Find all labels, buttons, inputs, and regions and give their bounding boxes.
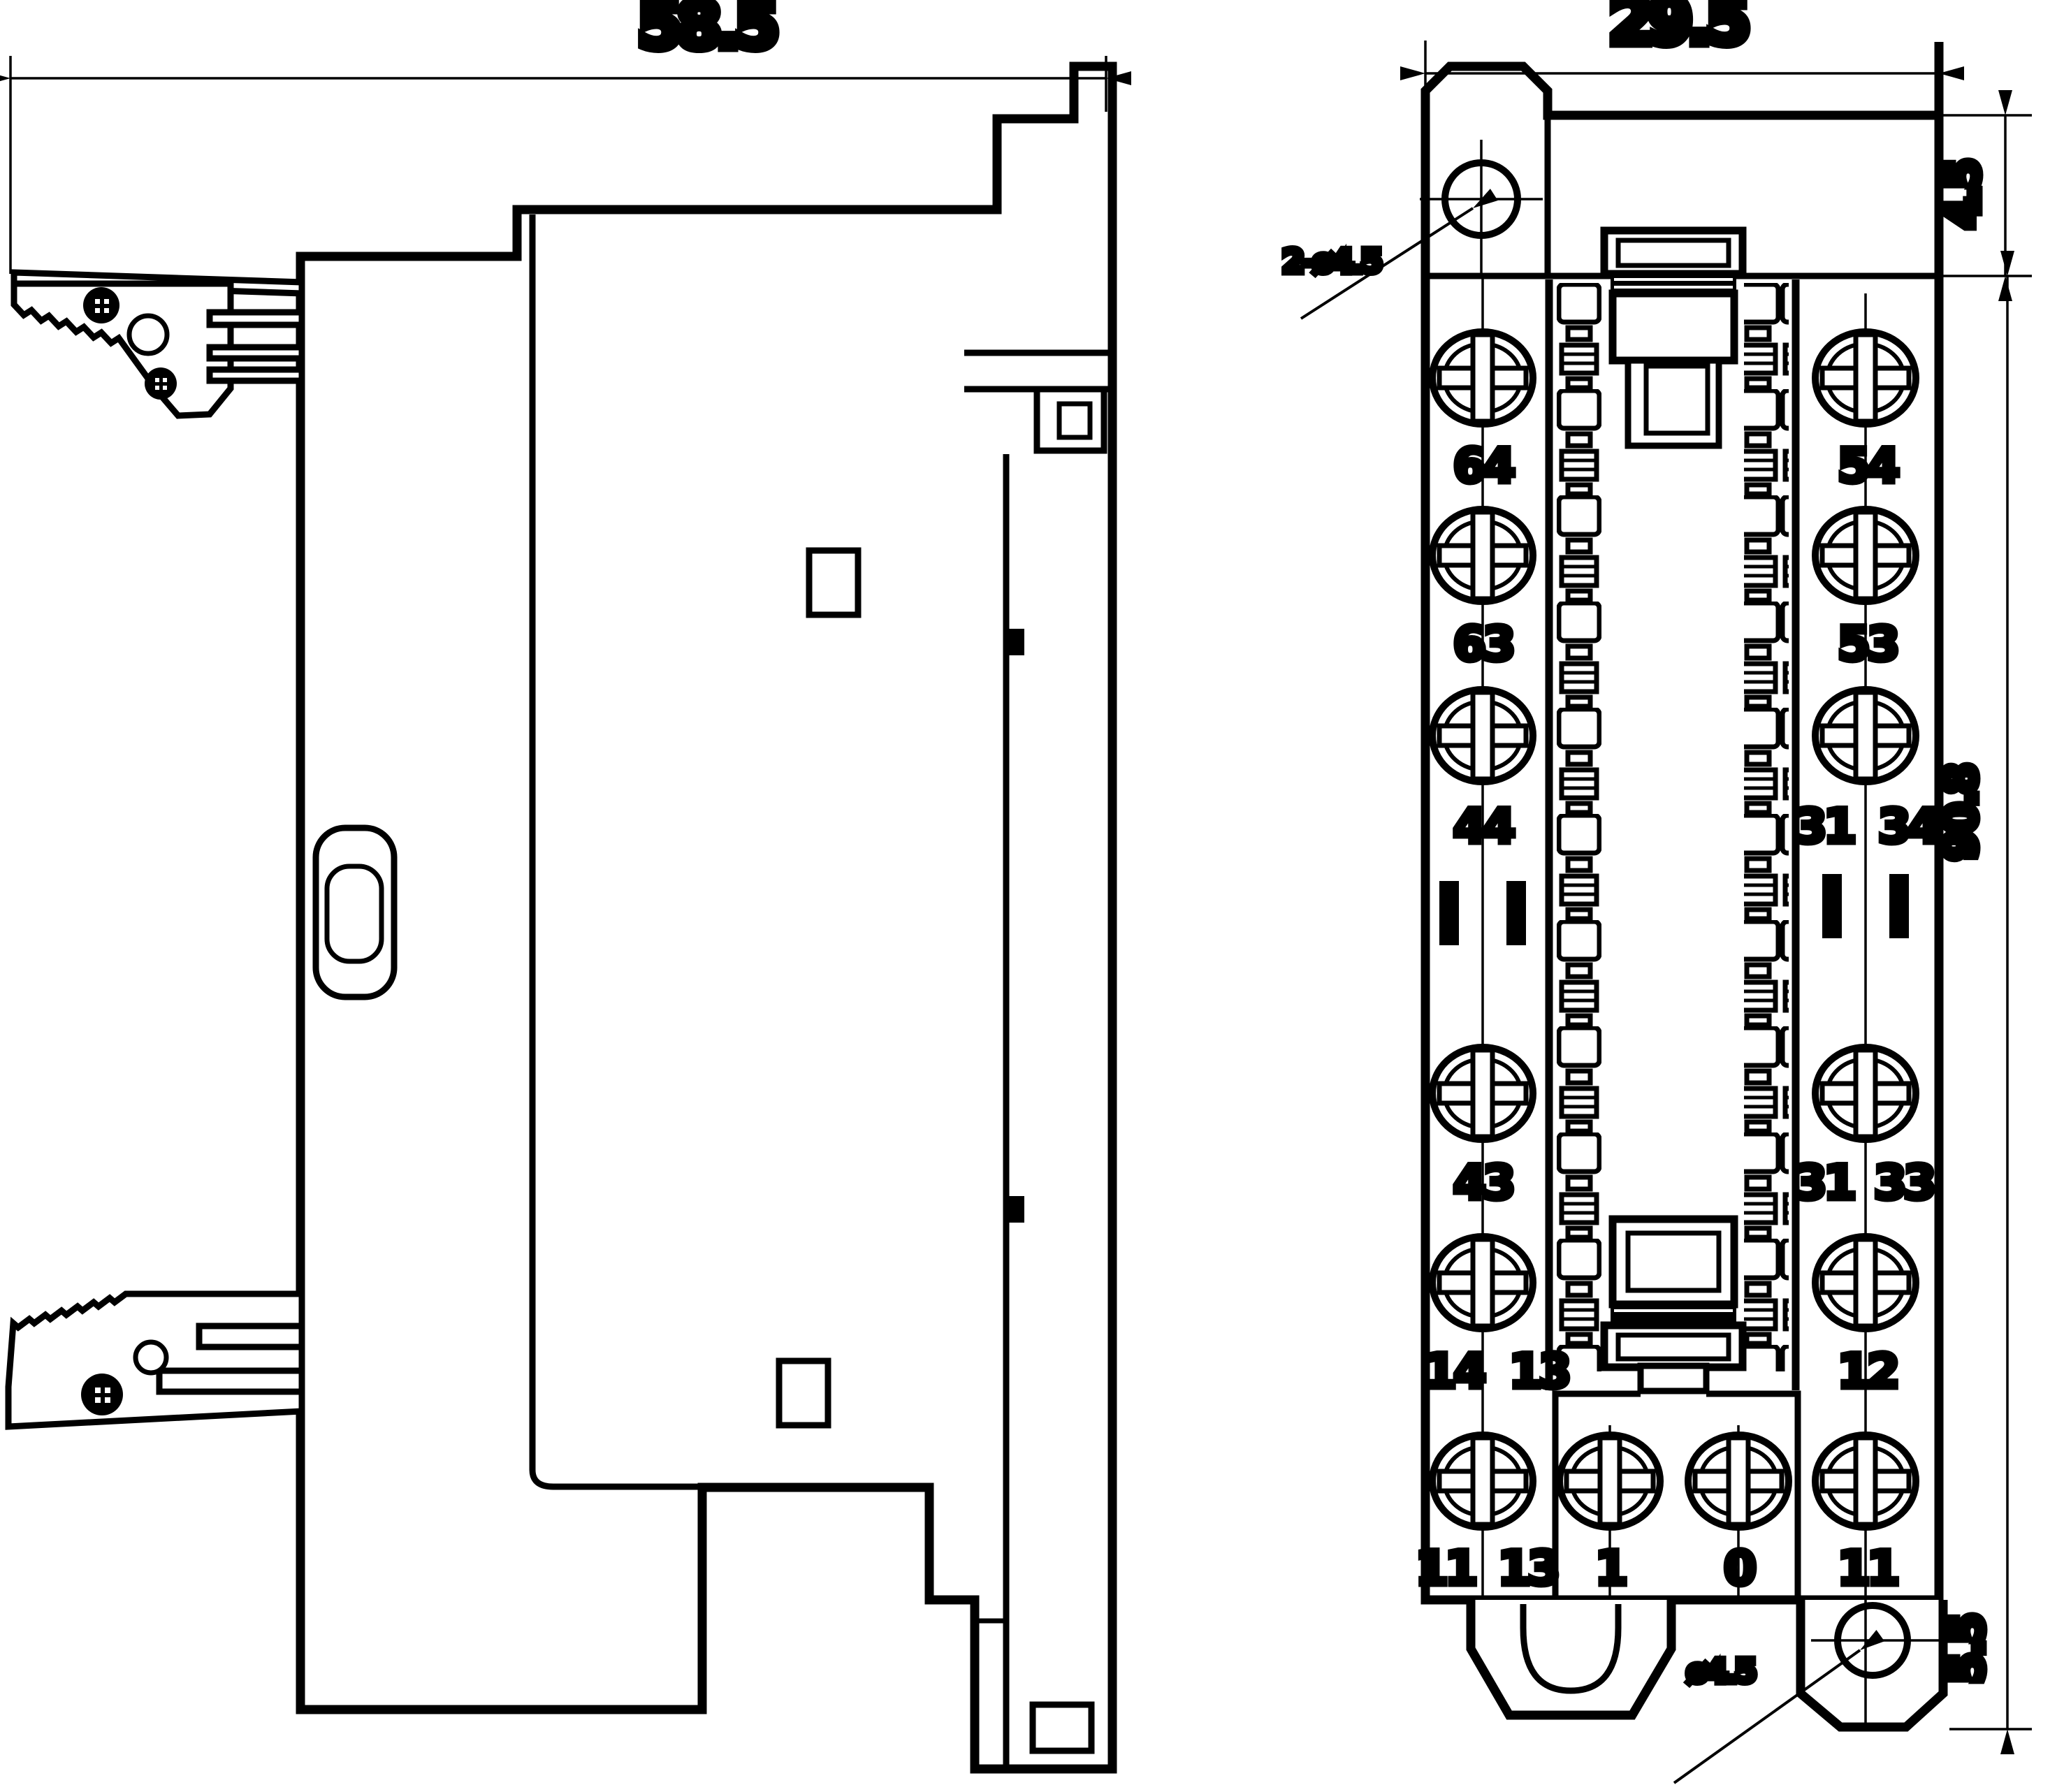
relay-latch-bottom [1604, 1219, 1743, 1391]
dimension-label-front-width: 29.5 [1609, 0, 1747, 59]
terminal-label: 44 [1453, 799, 1514, 854]
terminal-label: 13 [1509, 1344, 1569, 1399]
technical-drawing: 58.5 [0, 0, 2064, 1792]
terminal-label: 63 [1453, 617, 1513, 672]
din-claw-bottom [8, 1294, 302, 1427]
terminal-label: 1 [1595, 1541, 1625, 1596]
dimension-bottom-tab: 5.5 [1942, 1615, 1994, 1684]
dimension-label-front-height: 90.8 [1935, 766, 1987, 861]
dimension-label-side-width: 58.5 [638, 0, 776, 63]
callout-label-top-hole: 2-ø4.5 [1282, 242, 1381, 280]
terminal-label: 31 [1794, 1156, 1854, 1211]
dimension-label-hole-offset: 4.5 [1938, 161, 1990, 229]
terminal-label: 33 [1874, 1156, 1933, 1211]
din-rail-nub [1006, 629, 1024, 655]
terminal-label: 11 [1416, 1541, 1475, 1596]
dimension-front-height: 90.8 [1935, 276, 2032, 1729]
drawing-canvas: 58.5 [0, 0, 2064, 1792]
pivot-icon [145, 367, 177, 400]
dimension-hole-offset: 4.5 [1938, 115, 2032, 276]
terminal-label: 34 [1878, 799, 1939, 854]
contact-chain-left [1557, 283, 1601, 1371]
pivot-icon [83, 287, 119, 323]
terminal-label: 43 [1453, 1156, 1513, 1211]
terminal-label: 11 [1838, 1541, 1897, 1596]
side-body-outline [300, 66, 1112, 1769]
callout-label-bottom-hole: ø4.5 [1686, 1652, 1754, 1690]
pivot-ring-icon [129, 316, 167, 354]
contact-chain-right [1744, 283, 1789, 1371]
terminal-label: 64 [1453, 439, 1514, 494]
front-view: 64 63 44 43 14 13 11 13 1 0 11 54 53 31 … [1282, 0, 2032, 1783]
terminal-label: 0 [1724, 1541, 1755, 1596]
din-rail-nub [1006, 1196, 1024, 1223]
din-claw-top [14, 272, 302, 416]
side-view: 58.5 [8, 0, 1112, 1769]
relay-latch-top [1604, 231, 1743, 446]
pivot-icon [81, 1374, 123, 1415]
terminal-label: 12 [1838, 1344, 1897, 1399]
terminal-label: 53 [1838, 617, 1897, 672]
terminal-label: 13 [1498, 1541, 1557, 1596]
pivot-ring-icon [136, 1342, 166, 1373]
terminal-label: 31 [1794, 799, 1854, 854]
dimension-label-bottom-tab: 5.5 [1942, 1615, 1994, 1684]
release-tab-bottom-left [1471, 1600, 1671, 1715]
terminal-label: 54 [1838, 439, 1898, 494]
terminal-label: 14 [1424, 1344, 1485, 1399]
